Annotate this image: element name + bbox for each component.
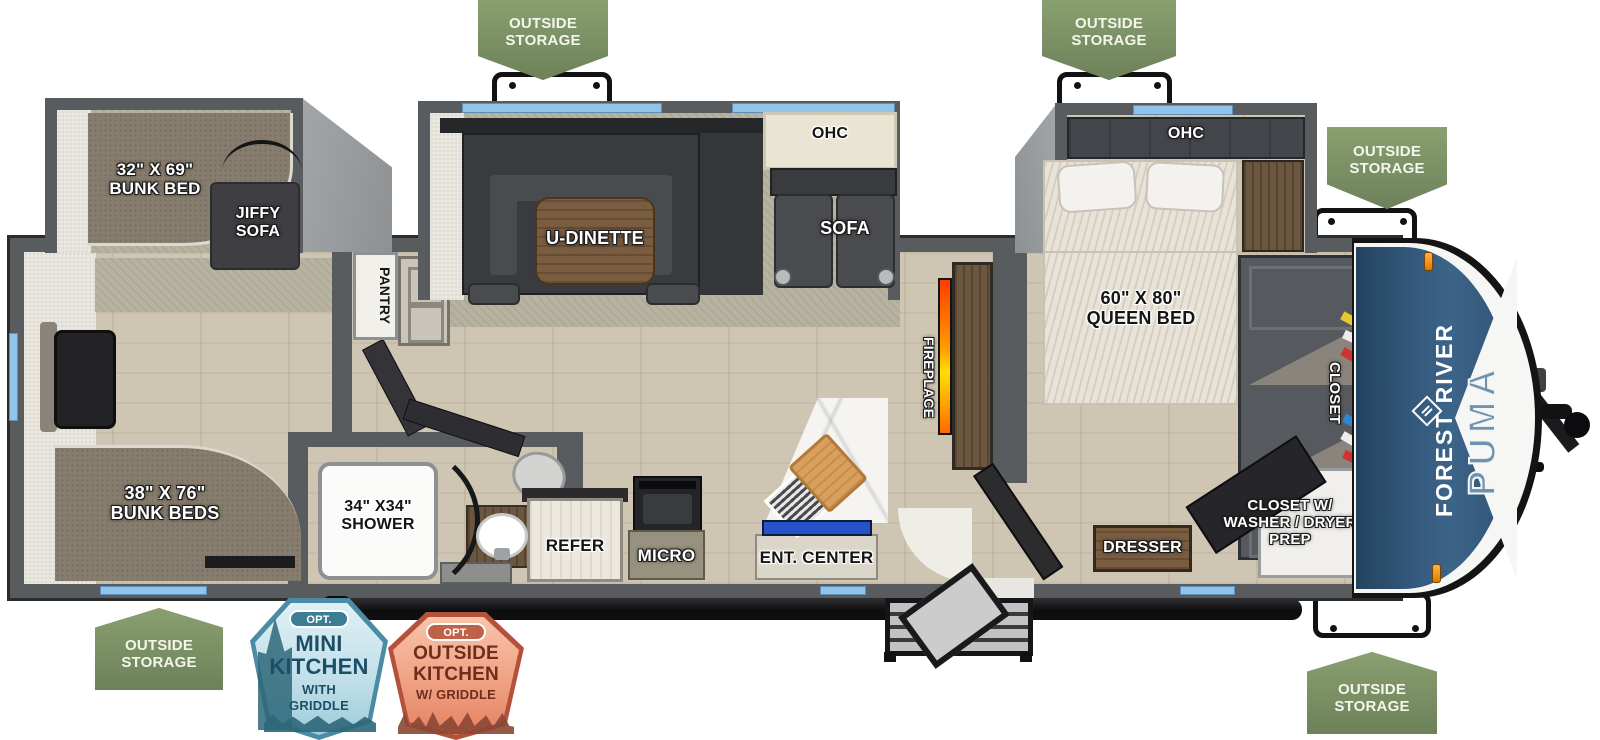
rivet-dot — [1328, 218, 1335, 225]
shower-label: 34" X34" SHOWER — [318, 498, 438, 534]
rivet-dot — [509, 82, 516, 89]
sofa-footrest-knob — [877, 268, 895, 286]
clearance-light — [1432, 564, 1441, 583]
sofa-back — [770, 168, 897, 196]
outside-storage-badge: OUTSIDE STORAGE — [95, 608, 223, 690]
outside-kitchen-title: OUTSIDE KITCHEN — [391, 644, 521, 686]
stove-glass — [643, 494, 692, 524]
rivet-dot — [1074, 82, 1081, 89]
outside-storage-badge: OUTSIDE STORAGE — [478, 0, 608, 80]
rivet-dot — [1400, 218, 1407, 225]
outside-storage-badge: OUTSIDE STORAGE — [1042, 0, 1176, 80]
sofa-label: SOFA — [800, 218, 890, 238]
washer-dryer-label: CLOSET W/ WASHER / DRYER PREP — [1210, 498, 1370, 548]
window — [1133, 105, 1233, 115]
faucet — [494, 548, 510, 560]
outside-kitchen-subtitle: W/ GRIDDLE — [391, 688, 521, 703]
opt-outside-kitchen-badge: OPT. OUTSIDE KITCHEN W/ GRIDDLE — [388, 612, 524, 740]
bunk-slide-label: 32" X 69" BUNK BED — [95, 160, 215, 198]
step-foot — [1020, 652, 1032, 662]
cabinet-door-panel — [408, 305, 444, 343]
opt-pill: OPT. — [426, 623, 486, 641]
window — [1180, 586, 1235, 595]
opt-pill: OPT. — [289, 610, 349, 628]
window — [462, 103, 662, 113]
outside-storage-badge: OUTSIDE STORAGE — [1327, 127, 1447, 209]
floorplan-diagram: 34" X34" SHOWER 38" X 76" BUNK BEDS PANT… — [0, 0, 1600, 740]
dinette-end-cushion — [646, 283, 700, 305]
ent-center-label: ENT. CENTER — [750, 548, 883, 567]
bunk-ladder — [205, 556, 295, 568]
rear-bunks-label: 38" X 76" BUNK BEDS — [75, 483, 255, 523]
rivet-dot — [1154, 82, 1161, 89]
opt-mini-kitchen-badge: OPT. MINI KITCHEN WITH GRIDDLE — [250, 598, 388, 740]
queen-bed-label: 60" X 80" QUEEN BED — [1060, 288, 1222, 328]
slide-side-panel — [302, 98, 392, 252]
slide-lining — [57, 110, 91, 253]
pillow — [1056, 160, 1137, 213]
tv — [54, 330, 116, 429]
dresser-label: DRESSER — [1093, 539, 1192, 557]
clearance-light — [1424, 252, 1433, 271]
manufacturer-name: FOREST RIVER — [1432, 290, 1460, 550]
model-name: PUMA — [1462, 350, 1502, 510]
fireplace — [938, 278, 952, 435]
window-valance — [440, 118, 815, 133]
jack-handle-knob — [1564, 412, 1590, 438]
jiffy-sofa-label: JIFFY SOFA — [218, 205, 298, 241]
rivet-dot — [593, 82, 600, 89]
ohc-bedroom-label: OHC — [1067, 125, 1305, 143]
pillow — [1145, 161, 1225, 213]
stove-knob-rail — [639, 481, 696, 489]
baggage-door-outline — [1313, 592, 1431, 638]
step-foot — [884, 652, 896, 662]
outside-storage-badge: OUTSIDE STORAGE — [1307, 652, 1437, 734]
window — [100, 586, 207, 595]
ohc-dinette-label: OHC — [763, 125, 897, 143]
closet-label: CLOSET — [1318, 338, 1342, 448]
mini-kitchen-title: MINI KITCHEN — [254, 632, 384, 678]
slide-lining — [430, 113, 464, 300]
fireplace-cabinet — [952, 262, 993, 470]
micro-label: MICRO — [628, 546, 705, 565]
pantry-label: PANTRY — [360, 258, 392, 334]
bathroom-wall-top — [288, 432, 583, 447]
hall-wall — [332, 245, 352, 440]
mini-kitchen-subtitle: WITH GRIDDLE — [254, 682, 384, 713]
sofa-footrest-knob — [774, 268, 792, 286]
fireplace-label: FIREPLACE — [912, 330, 936, 425]
slide-divider-panel — [700, 133, 763, 295]
dinette-end-cushion — [468, 283, 520, 305]
range-stove — [633, 476, 702, 532]
window — [9, 333, 18, 421]
refer-label: REFER — [527, 536, 623, 555]
ent-center-tv — [762, 520, 872, 536]
window — [820, 586, 866, 595]
rivet-dot — [1412, 625, 1419, 632]
bedside-wardrobe — [1242, 160, 1304, 252]
rivet-dot — [1330, 625, 1337, 632]
bedroom-wall — [993, 240, 1027, 483]
u-dinette-label: U-DINETTE — [527, 228, 663, 248]
